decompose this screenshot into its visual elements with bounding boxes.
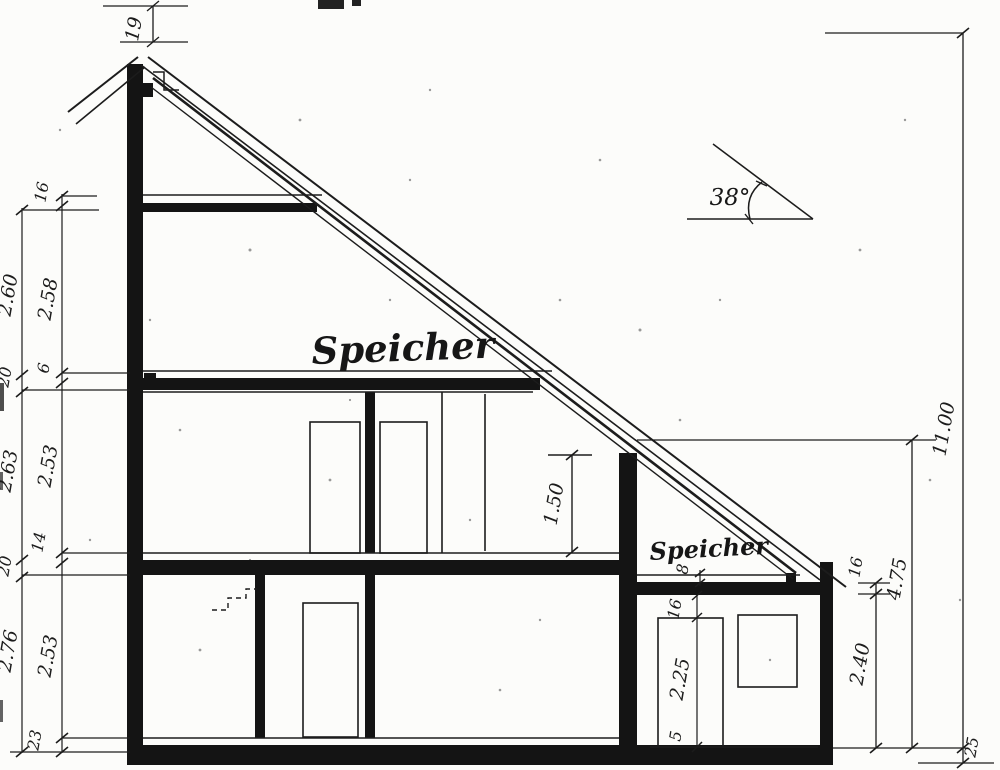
room-label-upper-attic: Speicher	[311, 323, 498, 373]
svg-text:2.53: 2.53	[33, 443, 62, 489]
collar-beam	[143, 203, 317, 212]
dashed-stair-outline	[212, 589, 257, 610]
attic-floor-slab	[143, 378, 540, 390]
total-height-label: 11.00	[929, 400, 960, 457]
plinth-label: 25	[960, 735, 982, 759]
svg-text:20: 20	[0, 554, 16, 578]
annex-plate-label: 8	[672, 562, 692, 575]
ground-slab	[127, 745, 833, 765]
annex-window	[738, 615, 797, 687]
svg-text:20: 20	[0, 365, 16, 389]
svg-text:2.76: 2.76	[0, 628, 23, 674]
svg-text:2.58: 2.58	[33, 276, 62, 322]
knee-wall-label: 1.50	[540, 481, 569, 526]
left-outer-chain-labels: 2.60 20 2.63 20 2.76	[0, 272, 23, 674]
roof-lines	[68, 57, 846, 587]
svg-text:23: 23	[23, 728, 45, 752]
first-floor-slab	[127, 560, 637, 575]
scanned-section-drawing: 19 2.60 20 2.63 20 2.76 16	[0, 0, 1000, 770]
interior-wall-ground-a	[255, 575, 265, 738]
ridge-beam	[138, 83, 153, 97]
annex-lintel-label: 16	[663, 597, 685, 620]
annex-height-label: 4.75	[882, 556, 911, 602]
interior-wall-ground-b	[365, 575, 375, 738]
annex-room-height-label: 2.40	[845, 641, 874, 687]
svg-text:14: 14	[27, 530, 49, 553]
left-dimension-chains	[10, 191, 130, 757]
structure-walls	[127, 64, 833, 765]
floor-lines	[143, 195, 818, 747]
svg-text:2.53: 2.53	[33, 633, 62, 679]
annex-slab-label: 16	[844, 555, 866, 578]
ground-door	[303, 603, 358, 737]
svg-text:16: 16	[30, 180, 52, 203]
right-dimension-lines	[637, 28, 994, 768]
house-cross-section: 19 2.60 20 2.63 20 2.76 16	[0, 0, 1000, 770]
roof-angle-label: 38°	[710, 185, 751, 211]
annex-ceiling-slab	[637, 582, 833, 595]
main-right-wall	[619, 453, 637, 765]
roof-angle-detail	[687, 144, 813, 224]
ridge-dim-label: 19	[121, 15, 147, 43]
annex-door-height-label: 2.25	[665, 656, 694, 702]
upper-door-right	[380, 422, 427, 553]
left-exterior-wall	[127, 64, 143, 765]
roof-surface-line	[148, 57, 846, 587]
svg-text:2.60: 2.60	[0, 272, 23, 318]
upper-door-left	[310, 422, 360, 553]
room-label-annex-attic: Speicher	[649, 531, 771, 566]
svg-text:2.63: 2.63	[0, 448, 23, 494]
left-inner-chain-labels: 16 2.58 6 2.53 14 2.53 23	[23, 180, 62, 752]
annex-sill-label: 5	[665, 729, 685, 742]
svg-text:6: 6	[33, 361, 53, 374]
attic-floor-beam	[144, 373, 156, 389]
interior-wall-upper	[365, 392, 375, 553]
